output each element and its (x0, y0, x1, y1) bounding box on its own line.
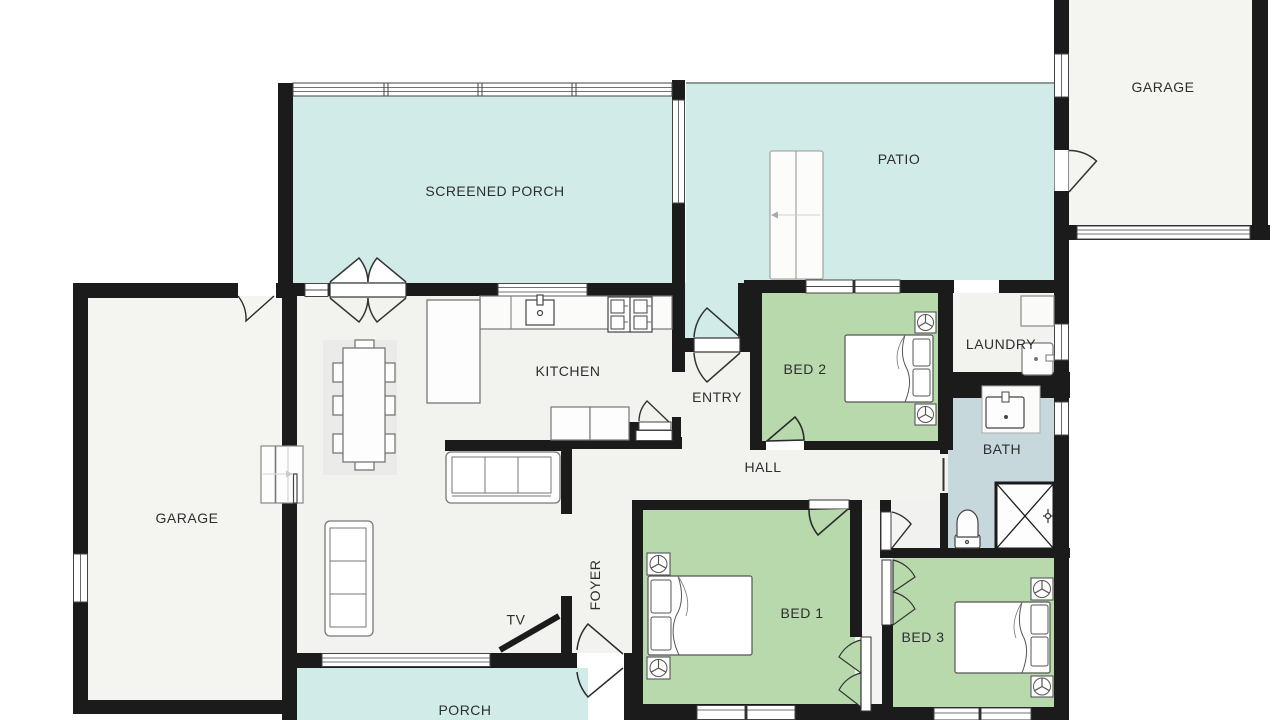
svg-text:SCREENED PORCH: SCREENED PORCH (425, 183, 564, 199)
svg-text:BATH: BATH (983, 441, 1021, 457)
svg-text:BED 1: BED 1 (781, 605, 824, 621)
svg-text:PATIO: PATIO (878, 151, 920, 167)
svg-text:LAUNDRY: LAUNDRY (966, 336, 1036, 352)
svg-text:KITCHEN: KITCHEN (536, 363, 601, 379)
svg-text:FOYER: FOYER (587, 560, 603, 611)
svg-text:PORCH: PORCH (438, 702, 491, 718)
svg-text:GARAGE: GARAGE (1132, 79, 1195, 95)
svg-text:BED 3: BED 3 (902, 629, 945, 645)
svg-text:TV: TV (507, 612, 526, 628)
svg-text:BED 2: BED 2 (784, 361, 827, 377)
svg-text:ENTRY: ENTRY (692, 389, 742, 405)
svg-text:GARAGE: GARAGE (156, 510, 219, 526)
svg-text:HALL: HALL (744, 459, 781, 475)
